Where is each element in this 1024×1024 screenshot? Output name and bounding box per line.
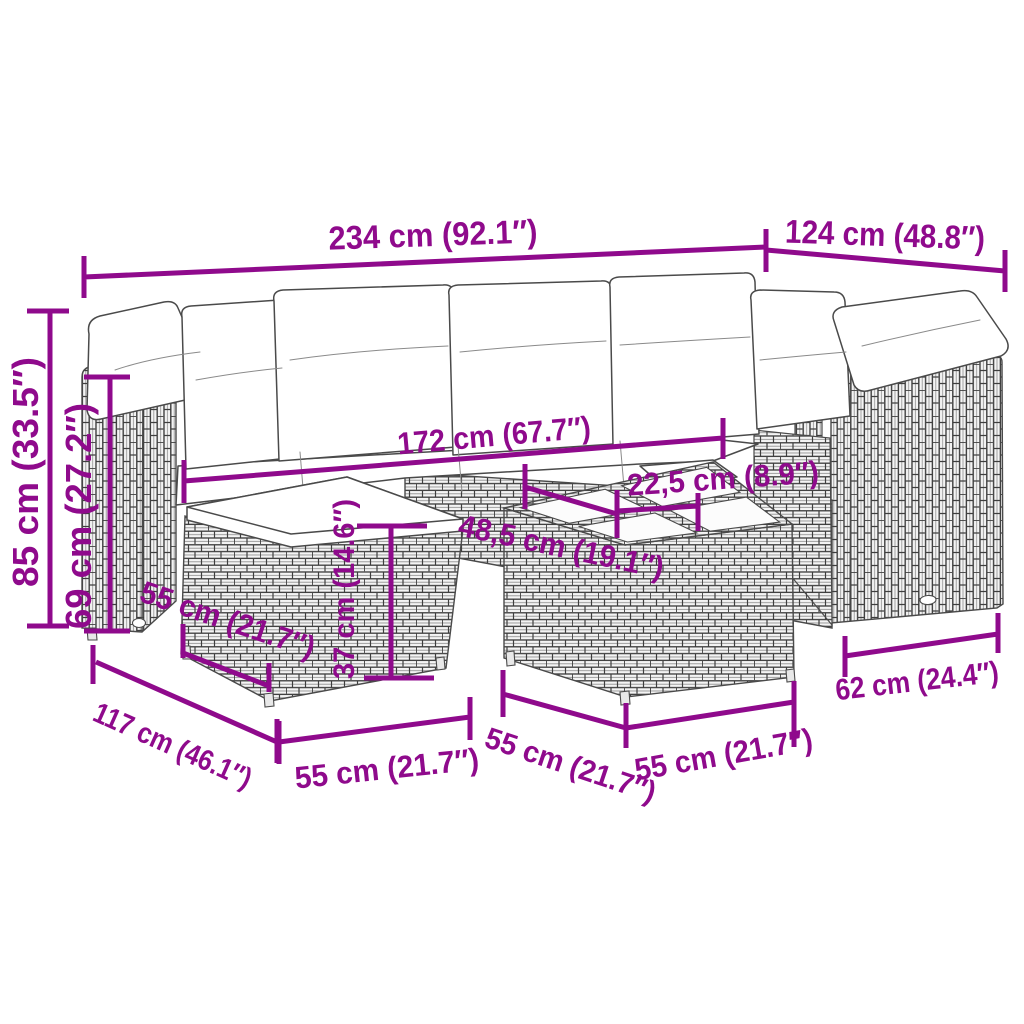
svg-text:37 cm (14.6″): 37 cm (14.6″)	[328, 499, 361, 679]
svg-text:85 cm (33.5″): 85 cm (33.5″)	[5, 357, 46, 587]
svg-text:234 cm (92.1″): 234 cm (92.1″)	[328, 212, 538, 256]
svg-text:124 cm (48.8″): 124 cm (48.8″)	[785, 213, 986, 257]
svg-text:69 cm (27.2″): 69 cm (27.2″)	[58, 403, 99, 629]
